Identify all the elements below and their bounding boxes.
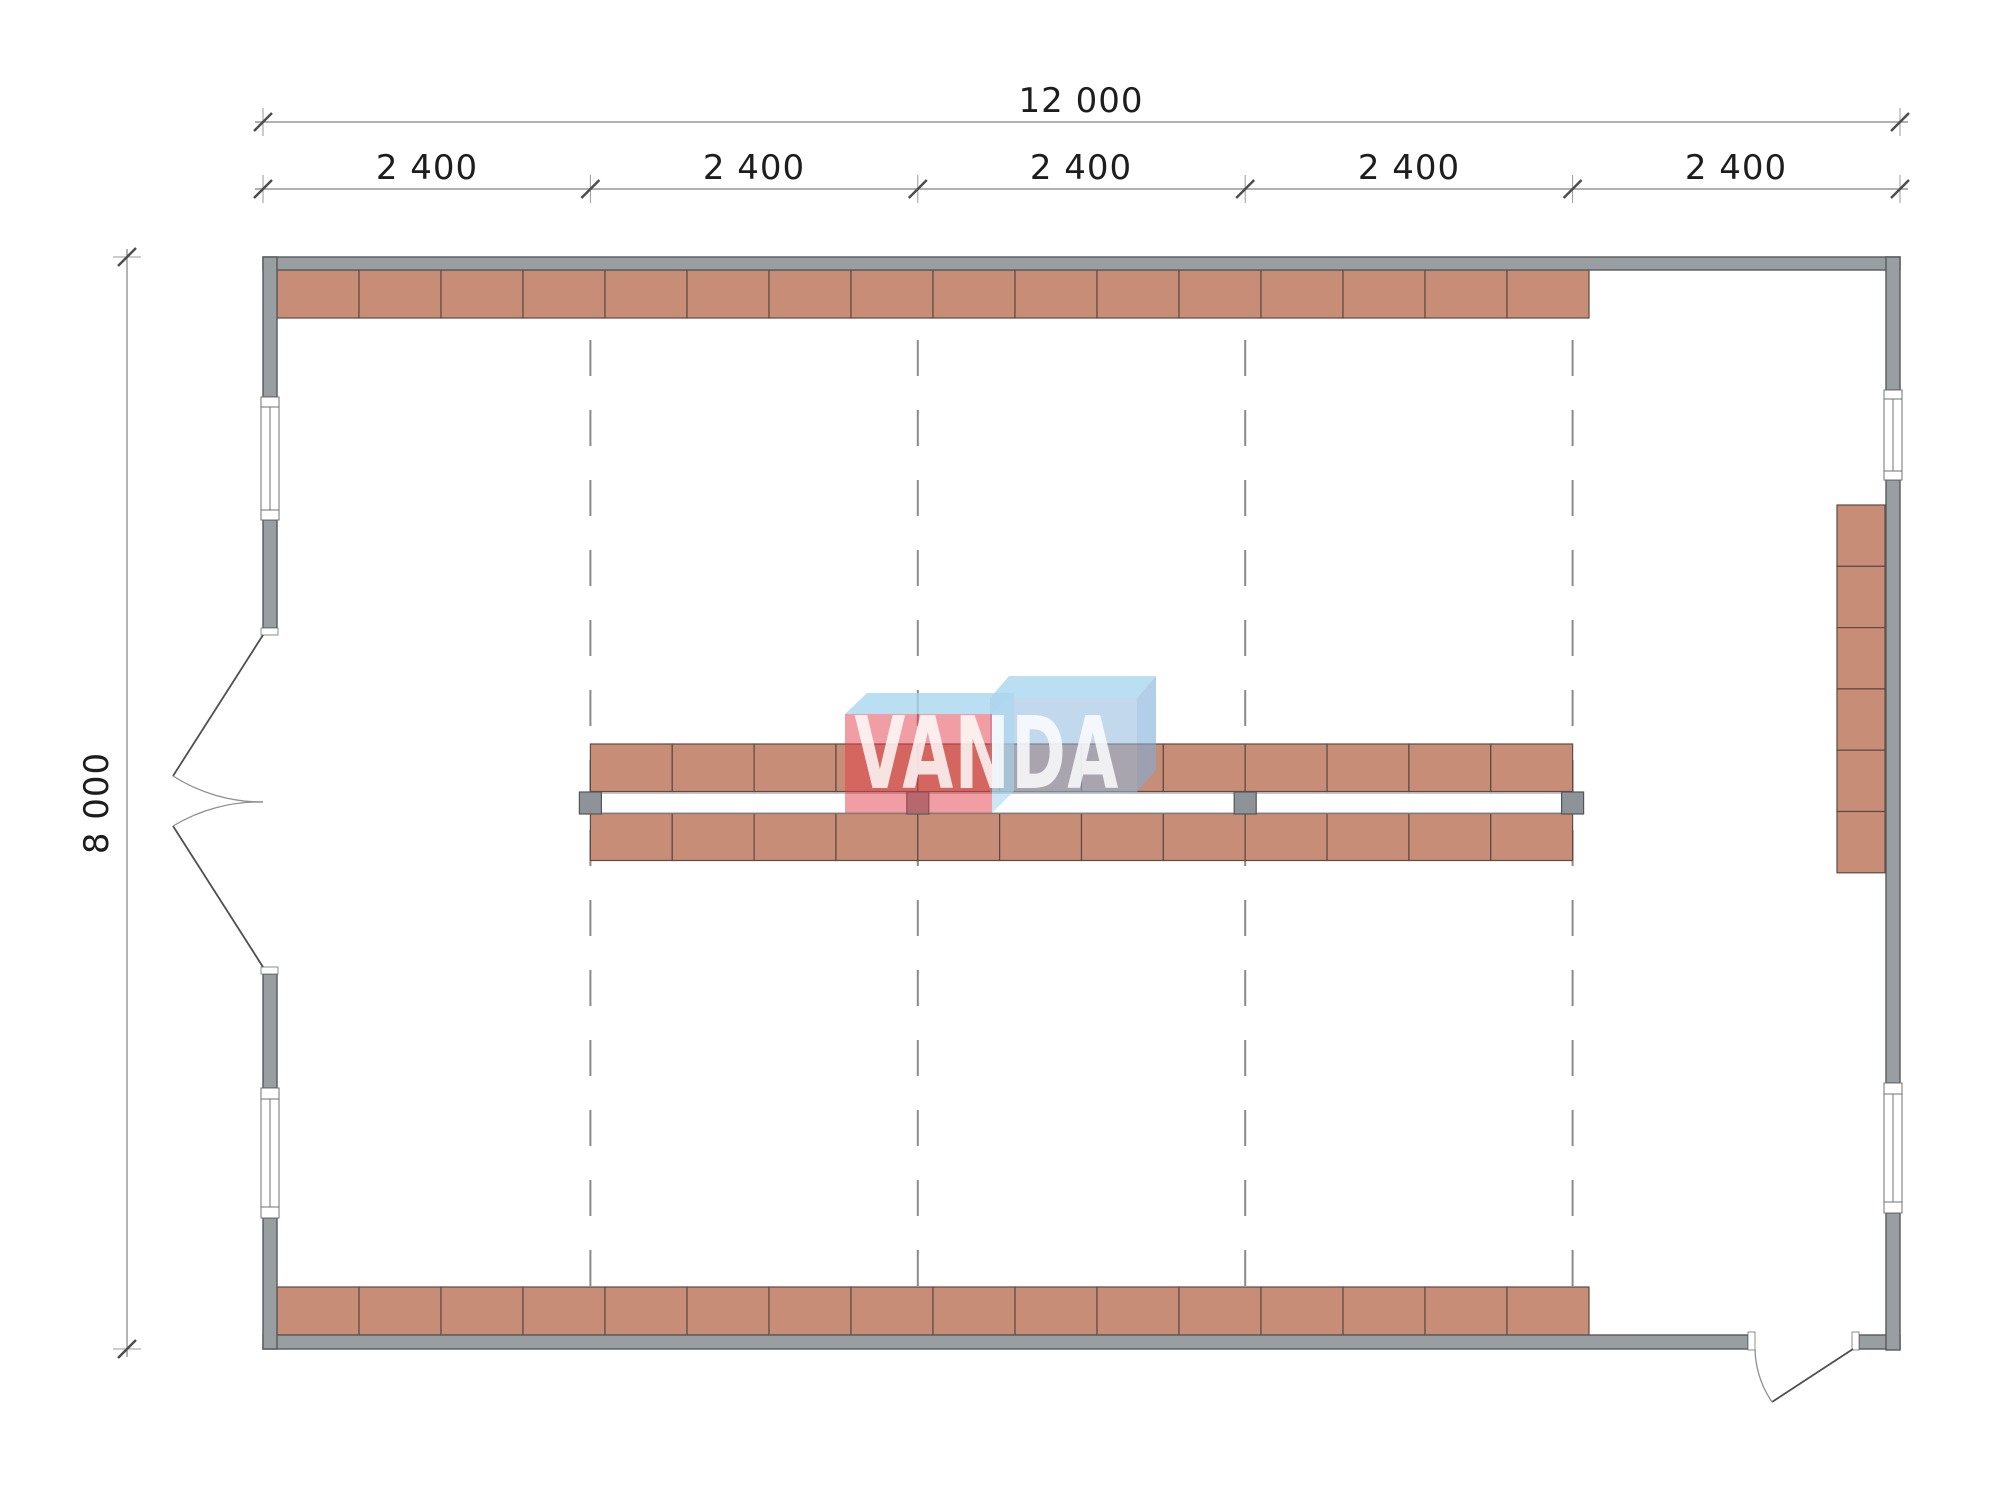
logo-text: VANDA [854,695,1119,812]
door-swing-arc-upper [173,776,263,802]
door-jamb [1852,1332,1859,1350]
shelf-unit [851,270,933,318]
shelf-unit [1837,812,1885,873]
door-leaf-upper [173,635,263,776]
shelf-unit [1245,814,1327,861]
wall-top [263,257,1900,270]
door-jamb [261,967,278,974]
door-leaf-lower [173,826,263,967]
dim-label-total-width: 12 000 [1019,81,1144,121]
shelf-unit [1327,814,1409,861]
shelf-unit [605,270,687,318]
dim-label-segment-2: 2 400 [703,148,805,188]
shelf-unit [441,1287,523,1335]
shelf-unit [441,270,523,318]
shelf-unit [590,814,672,861]
shelf-unit [1491,744,1573,792]
shelf-unit [1837,689,1885,750]
shelf-unit [769,1287,851,1335]
shelf-unit [359,270,441,318]
shelf-unit [933,270,1015,318]
door-bottom-right [1748,1332,1859,1402]
shelf-unit [1163,744,1245,792]
shelf-unit [1015,1287,1097,1335]
wall-right-seg-2 [1886,480,1900,1083]
dimension-height: 8 000 [77,248,141,1358]
wall-left-seg-4 [263,1218,277,1349]
dim-label-segment-3: 2 400 [1030,148,1132,188]
shelf-unit [1082,814,1164,861]
door-swing-arc-lower [173,802,263,826]
floor-plan-canvas: 12 000 2 400 2 400 2 400 2 400 2 400 8 0… [0,0,2000,1488]
shelf-unit [1343,270,1425,318]
shelf-unit [1409,744,1491,792]
window-right-lower [1884,1083,1902,1213]
shelf-unit [1425,270,1507,318]
shelf-unit [605,1287,687,1335]
door-swing-arc [1755,1349,1772,1402]
shelf-unit [1245,744,1327,792]
shelf-unit [1837,750,1885,811]
wall-left-seg-3 [263,974,277,1088]
shelf-unit [836,814,918,861]
shelf-unit [1163,814,1245,861]
wall-left-seg-2 [263,520,277,628]
dimension-segments: 2 400 2 400 2 400 2 400 2 400 [254,148,1909,203]
shelf-unit [687,1287,769,1335]
window-left-lower [261,1088,279,1218]
shelf-unit [590,744,672,792]
dim-label-segment-4: 2 400 [1358,148,1460,188]
shelf-unit [1837,566,1885,627]
wall-left-seg-1 [263,257,277,397]
shelf-unit [1491,814,1573,861]
shelf-unit [523,1287,605,1335]
shelf-unit [918,814,1000,861]
shelf-unit [1507,1287,1589,1335]
shelf-unit [277,1287,359,1335]
door-jamb [261,628,278,635]
shelf-unit [1837,628,1885,689]
column-post [579,792,601,814]
shelf-unit [1179,270,1261,318]
bottom-wall-shelf-row [277,1287,1589,1335]
shelf-unit [769,270,851,318]
shelf-unit [851,1287,933,1335]
center-lower-shelf-row [590,814,1572,861]
top-wall-shelf-row [277,270,1589,318]
shelf-unit [672,744,754,792]
shelf-unit [523,270,605,318]
door-jamb [1748,1332,1755,1350]
shelf-unit [1261,1287,1343,1335]
window-right-upper [1884,390,1902,480]
shelf-unit [933,1287,1015,1335]
shelf-unit [1097,270,1179,318]
shelf-unit [754,814,836,861]
vanda-watermark: VANDA [845,676,1156,813]
dimension-total-width: 12 000 [254,81,1909,136]
dim-label-segment-1: 2 400 [376,148,478,188]
window-left-upper [261,397,279,520]
shelf-unit [1425,1287,1507,1335]
shelf-unit [359,1287,441,1335]
shelf-unit [1507,270,1589,318]
shelf-unit [754,744,836,792]
shelf-unit [1409,814,1491,861]
shelf-unit [1000,814,1082,861]
door-leaf [1772,1349,1853,1402]
shelf-unit [672,814,754,861]
shelf-unit [1261,270,1343,318]
shelf-unit [1179,1287,1261,1335]
shelf-unit [1327,744,1409,792]
wall-right-seg-3 [1886,1213,1900,1350]
column-post [1562,792,1584,814]
shelf-unit [277,270,359,318]
shelf-unit [1837,505,1885,566]
wall-right-seg-1 [1886,257,1900,390]
shelf-unit [1097,1287,1179,1335]
shelf-unit [687,270,769,318]
dim-label-height: 8 000 [77,752,117,854]
column-post [1234,792,1256,814]
wall-bottom-left-segment [263,1335,1748,1349]
dim-label-segment-5: 2 400 [1685,148,1787,188]
floor-plan-page: 12 000 2 400 2 400 2 400 2 400 2 400 8 0… [0,0,2000,1488]
right-wall-shelf-column [1837,505,1885,873]
shelf-unit [1343,1287,1425,1335]
double-door-left [173,628,278,974]
shelf-unit [1015,270,1097,318]
